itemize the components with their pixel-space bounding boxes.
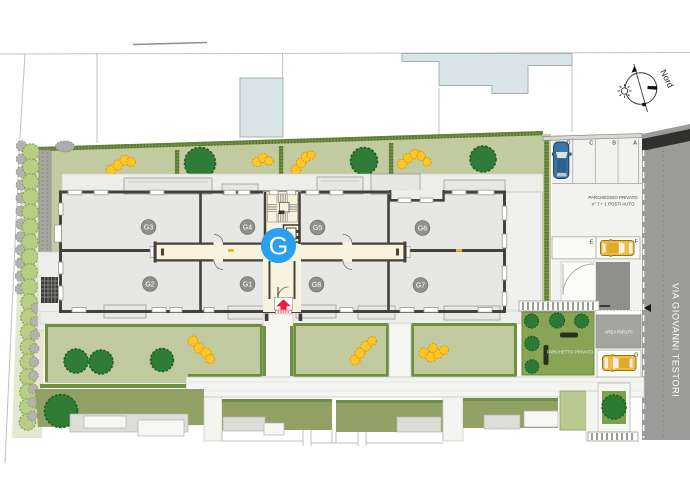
svg-text:G: G bbox=[269, 233, 288, 261]
svg-text:C: C bbox=[589, 141, 593, 147]
svg-text:E: E bbox=[590, 240, 594, 246]
svg-text:PARCHEGGIO PRIVATO: PARCHEGGIO PRIVATO bbox=[588, 195, 638, 200]
svg-text:F: F bbox=[635, 239, 639, 245]
svg-text:G6: G6 bbox=[418, 226, 427, 233]
svg-text:n° 7 + 1 POSTI AUTO: n° 7 + 1 POSTI AUTO bbox=[592, 202, 635, 207]
svg-text:D: D bbox=[566, 141, 570, 147]
svg-text:G1: G1 bbox=[243, 282, 252, 289]
svg-text:A: A bbox=[633, 141, 637, 147]
svg-text:VIA GIOVANNI TESTORI: VIA GIOVANNI TESTORI bbox=[671, 283, 681, 397]
svg-text:G4: G4 bbox=[243, 225, 252, 232]
svg-text:G8: G8 bbox=[312, 282, 321, 289]
svg-text:G7: G7 bbox=[416, 283, 425, 290]
svg-text:PARCHETTO PRIVATO: PARCHETTO PRIVATO bbox=[547, 350, 594, 355]
svg-text:B: B bbox=[612, 141, 616, 147]
svg-text:AREA RIFIUTI: AREA RIFIUTI bbox=[604, 330, 632, 335]
svg-text:G5: G5 bbox=[313, 225, 322, 232]
svg-text:G3: G3 bbox=[144, 225, 153, 232]
svg-text:G2: G2 bbox=[145, 282, 154, 289]
